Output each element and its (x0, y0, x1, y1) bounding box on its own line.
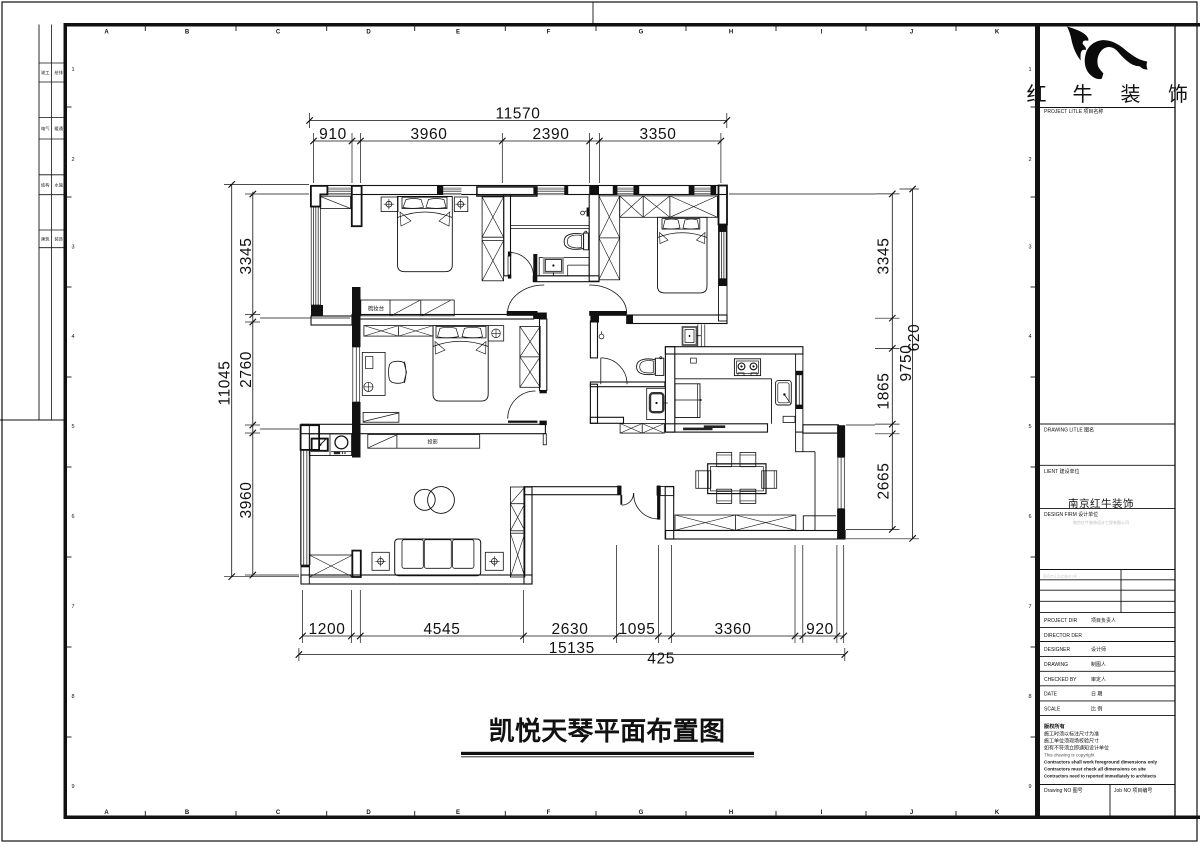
svg-text:如有不符须立即通知设计单位: 如有不符须立即通知设计单位 (1044, 745, 1109, 752)
svg-text:凯悦天琴平面布置图: 凯悦天琴平面布置图 (489, 716, 726, 746)
svg-text:3960: 3960 (238, 482, 255, 519)
svg-text:3350: 3350 (640, 126, 677, 143)
svg-text:2390: 2390 (533, 126, 570, 143)
svg-text:425: 425 (647, 651, 675, 668)
svg-text:牛: 牛 (1073, 83, 1093, 106)
svg-text:CHECKED BY: CHECKED BY (1044, 677, 1077, 683)
svg-text:15135: 15135 (549, 640, 595, 657)
svg-text:6: 6 (72, 514, 75, 520)
svg-text:Drawing NO 图号: Drawing NO 图号 (1044, 788, 1083, 794)
svg-text:红: 红 (1027, 83, 1047, 106)
svg-text:B: B (185, 30, 190, 36)
svg-text:电气: 电气 (41, 125, 50, 131)
svg-text:Contractors must check all dim: Contractors must check all dimensions on… (1044, 767, 1146, 772)
svg-text:E: E (456, 810, 460, 816)
svg-text:日 期: 日 期 (1091, 691, 1102, 697)
svg-text:施工单位须现场校验尺寸: 施工单位须现场校验尺寸 (1044, 738, 1099, 745)
svg-text:暖通: 暖通 (55, 125, 64, 132)
svg-text:设计师: 设计师 (1091, 646, 1106, 653)
svg-text:D: D (366, 30, 371, 36)
svg-text:DESIGN FIRM 设计单位: DESIGN FIRM 设计单位 (1044, 511, 1098, 518)
svg-text:比 例: 比 例 (1091, 705, 1102, 712)
svg-text:2: 2 (1028, 157, 1031, 163)
svg-text:4: 4 (72, 334, 75, 340)
svg-text:3: 3 (1028, 245, 1031, 251)
svg-text:DRAWING: DRAWING (1044, 662, 1068, 668)
svg-text:装饰: 装饰 (55, 235, 63, 242)
svg-text:1865: 1865 (876, 373, 893, 410)
svg-text:2665: 2665 (876, 463, 893, 500)
svg-text:920: 920 (806, 621, 834, 638)
svg-text:Contractors need to reported i: Contractors need to reported immediately… (1044, 774, 1157, 779)
svg-text:DESIGNER: DESIGNER (1044, 647, 1071, 653)
svg-text:Contractors shall work foregro: Contractors shall work foreground dimens… (1044, 760, 1158, 765)
svg-text:结构: 结构 (41, 181, 49, 188)
svg-text:910: 910 (319, 126, 347, 143)
svg-text:5: 5 (1028, 424, 1031, 430)
svg-text:制图人: 制图人 (1091, 661, 1106, 668)
svg-text:项目负责人: 项目负责人 (1091, 617, 1116, 624)
svg-text:H: H (729, 30, 733, 36)
svg-text:A: A (104, 30, 109, 36)
svg-text:620: 620 (906, 324, 923, 352)
svg-text:9: 9 (1028, 784, 1031, 790)
svg-text:竣工: 竣工 (41, 69, 49, 76)
svg-text:2760: 2760 (238, 351, 255, 388)
svg-text:施工时须以标注尺寸为准: 施工时须以标注尺寸为准 (1044, 731, 1099, 738)
svg-text:3960: 3960 (411, 126, 448, 143)
svg-text:DRAWING LITLE 图名: DRAWING LITLE 图名 (1044, 427, 1094, 434)
svg-text:D: D (366, 810, 371, 816)
svg-text:7: 7 (1028, 604, 1031, 610)
svg-text:K: K (995, 30, 1000, 36)
svg-text:6: 6 (1028, 514, 1031, 520)
svg-text:G: G (639, 30, 644, 36)
svg-text:3: 3 (72, 245, 75, 251)
svg-text:3345: 3345 (238, 238, 255, 275)
svg-text:梳妆台: 梳妆台 (368, 304, 384, 312)
svg-text:南京红牛装饰设计工程有限公司: 南京红牛装饰设计工程有限公司 (1073, 519, 1129, 525)
svg-text:2: 2 (72, 157, 75, 163)
svg-text:F: F (547, 810, 551, 816)
svg-text:给排: 给排 (55, 69, 64, 76)
svg-text:J: J (910, 810, 913, 816)
svg-text:This drawing is copyright: This drawing is copyright (1044, 753, 1095, 758)
svg-text:投影: 投影 (428, 438, 438, 446)
svg-text:8: 8 (72, 694, 75, 700)
svg-text:Job NO 项目编号: Job NO 项目编号 (1114, 787, 1152, 794)
svg-text:11570: 11570 (496, 106, 541, 123)
svg-text:9: 9 (72, 784, 75, 790)
svg-text:F: F (547, 30, 551, 36)
svg-text:4: 4 (1028, 334, 1031, 340)
svg-text:水施: 水施 (55, 181, 64, 188)
svg-text:版权所有: 版权所有 (1043, 722, 1065, 730)
svg-text:1: 1 (1028, 67, 1031, 73)
svg-text:装: 装 (1121, 83, 1141, 106)
svg-text:C: C (276, 30, 281, 36)
svg-text:J: J (910, 30, 913, 36)
svg-text:C: C (276, 810, 281, 816)
svg-text:南京红牛装饰: 南京红牛装饰 (1068, 497, 1134, 510)
svg-text:3360: 3360 (715, 621, 752, 638)
svg-text:7: 7 (72, 604, 75, 610)
svg-text:A: A (104, 810, 109, 816)
svg-text:2630: 2630 (552, 621, 589, 638)
svg-text:3345: 3345 (876, 238, 893, 275)
svg-text:SCALE: SCALE (1044, 706, 1061, 712)
svg-text:建筑: 建筑 (41, 235, 50, 242)
svg-text:G: G (639, 810, 644, 816)
svg-text:1200: 1200 (309, 621, 346, 638)
svg-text:K: K (995, 810, 1000, 816)
svg-text:8: 8 (1028, 694, 1031, 700)
svg-text:PROJECT LITLE 项目名称: PROJECT LITLE 项目名称 (1044, 108, 1103, 115)
svg-text:B: B (185, 810, 190, 816)
svg-text:H: H (729, 810, 733, 816)
svg-text:南京市江东北路301号: 南京市江东北路301号 (1043, 574, 1077, 579)
svg-text:审定人: 审定人 (1091, 676, 1106, 683)
svg-text:1: 1 (72, 67, 75, 73)
svg-text:4545: 4545 (424, 621, 461, 638)
svg-text:DATE: DATE (1044, 691, 1058, 697)
svg-text:1095: 1095 (619, 621, 656, 638)
svg-text:饰: 饰 (1168, 83, 1188, 106)
svg-text:LIENT 建设单位: LIENT 建设单位 (1044, 468, 1079, 475)
svg-text:5: 5 (72, 424, 75, 430)
svg-text:PROJECT DIR: PROJECT DIR (1044, 618, 1078, 624)
svg-text:E: E (456, 30, 460, 36)
svg-text:DIRECTOR DER: DIRECTOR DER (1044, 633, 1082, 639)
svg-text:11045: 11045 (217, 361, 234, 406)
